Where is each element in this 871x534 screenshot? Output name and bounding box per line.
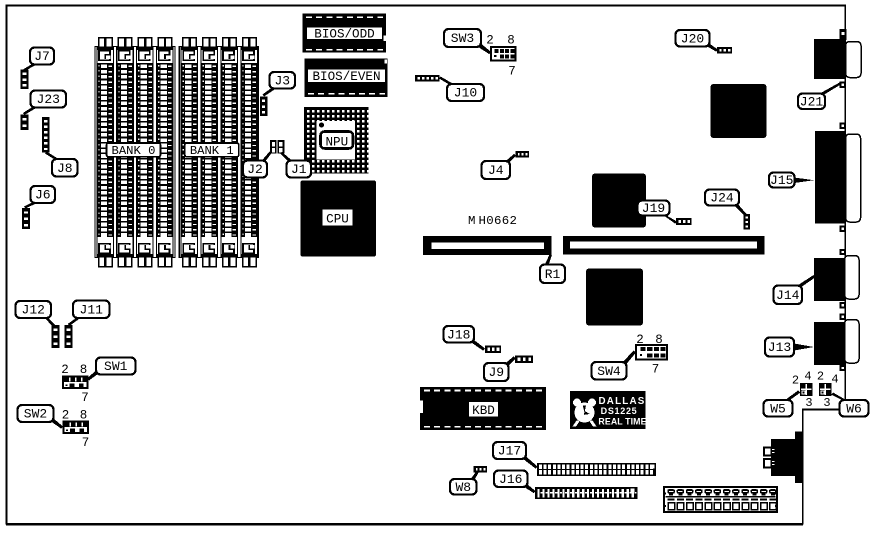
svg-text:SW2: SW2	[24, 407, 47, 422]
svg-text:2: 2	[636, 333, 644, 347]
svg-text:W6: W6	[846, 401, 862, 416]
svg-text:8: 8	[80, 409, 88, 423]
svg-text:BANK 1: BANK 1	[190, 144, 234, 158]
svg-text:J21: J21	[800, 94, 824, 109]
svg-text:BANK 0: BANK 0	[112, 144, 156, 158]
svg-text:7: 7	[82, 436, 90, 450]
svg-text:J3: J3	[274, 73, 290, 88]
svg-text:J20: J20	[681, 31, 704, 46]
svg-text:J19: J19	[642, 201, 665, 216]
svg-text:2: 2	[486, 34, 494, 48]
svg-text:J23: J23	[37, 92, 60, 107]
svg-text:SW4: SW4	[597, 364, 621, 379]
svg-text:J17: J17	[498, 444, 521, 459]
svg-text:8: 8	[80, 363, 88, 377]
svg-text:J13: J13	[768, 340, 791, 355]
svg-text:J1: J1	[291, 162, 307, 177]
svg-text:W5: W5	[770, 401, 786, 416]
svg-text:4: 4	[804, 370, 811, 384]
svg-text:R1: R1	[545, 267, 561, 282]
svg-text:J6: J6	[35, 188, 51, 203]
svg-text:J14: J14	[776, 288, 800, 303]
svg-text:SW1: SW1	[104, 359, 128, 374]
svg-text:W8: W8	[455, 480, 471, 495]
svg-text:CPU: CPU	[326, 213, 349, 227]
svg-text:7: 7	[81, 391, 89, 405]
svg-text:J15: J15	[770, 173, 793, 188]
svg-text:7: 7	[508, 65, 516, 79]
svg-text:J7: J7	[34, 49, 50, 64]
svg-text:REAL TIME: REAL TIME	[598, 417, 646, 427]
svg-text:KBD: KBD	[472, 404, 495, 418]
svg-text:2: 2	[817, 370, 824, 384]
svg-text:J18: J18	[447, 327, 470, 342]
svg-text:J9: J9	[488, 365, 504, 380]
svg-text:J4: J4	[488, 163, 504, 178]
svg-text:BIOS/ODD: BIOS/ODD	[314, 27, 374, 41]
svg-text:8: 8	[507, 34, 515, 48]
svg-text:J24: J24	[710, 191, 734, 206]
svg-text:4: 4	[831, 373, 838, 387]
svg-text:8: 8	[655, 333, 663, 347]
svg-text:3: 3	[823, 396, 830, 410]
svg-text:2: 2	[792, 374, 799, 388]
svg-text:2: 2	[62, 409, 70, 423]
svg-text:DS1225: DS1225	[601, 406, 638, 416]
svg-text:BIOS/EVEN: BIOS/EVEN	[312, 70, 380, 84]
svg-text:7: 7	[652, 363, 660, 377]
svg-text:J10: J10	[454, 86, 477, 101]
svg-text:3: 3	[805, 396, 812, 410]
svg-text:J2: J2	[247, 162, 263, 177]
svg-text:2: 2	[61, 363, 69, 377]
svg-text:J16: J16	[499, 472, 522, 487]
svg-text:NPU: NPU	[325, 135, 348, 149]
svg-text:SW3: SW3	[451, 31, 474, 46]
svg-text:J12: J12	[22, 303, 45, 318]
svg-text:J11: J11	[80, 302, 104, 317]
svg-text:M H0662: M H0662	[468, 214, 517, 228]
svg-text:J8: J8	[57, 161, 73, 176]
